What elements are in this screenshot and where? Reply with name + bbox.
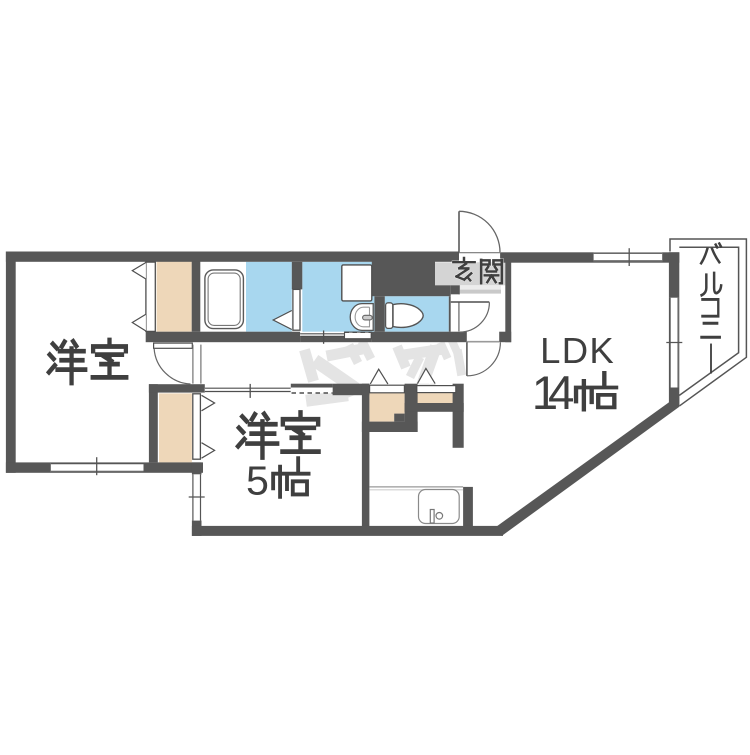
svg-text:4: 4: [548, 367, 574, 420]
svg-text:LDK: LDK: [540, 330, 615, 371]
svg-text:5: 5: [246, 458, 269, 504]
